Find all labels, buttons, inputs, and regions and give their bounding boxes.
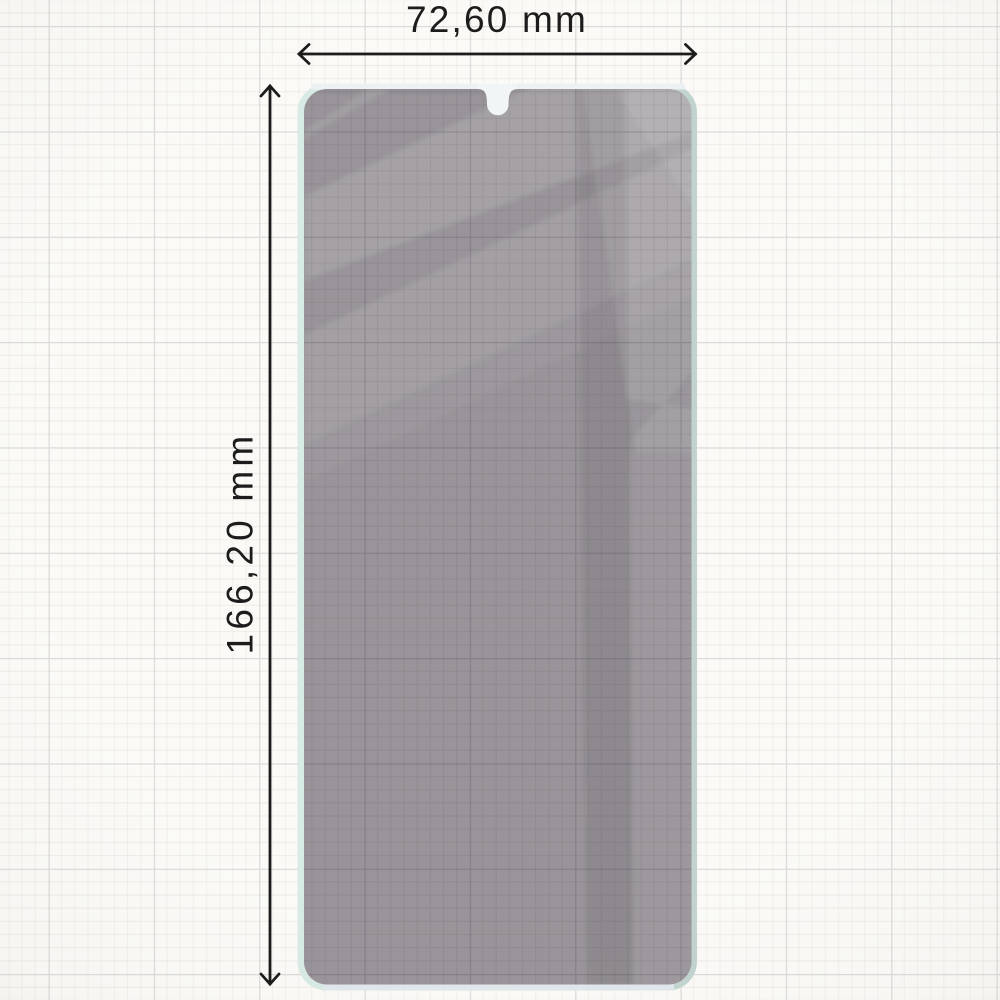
svg-text:72,60 mm: 72,60 mm <box>406 0 588 40</box>
svg-text:166,20 mm: 166,20 mm <box>220 432 261 655</box>
